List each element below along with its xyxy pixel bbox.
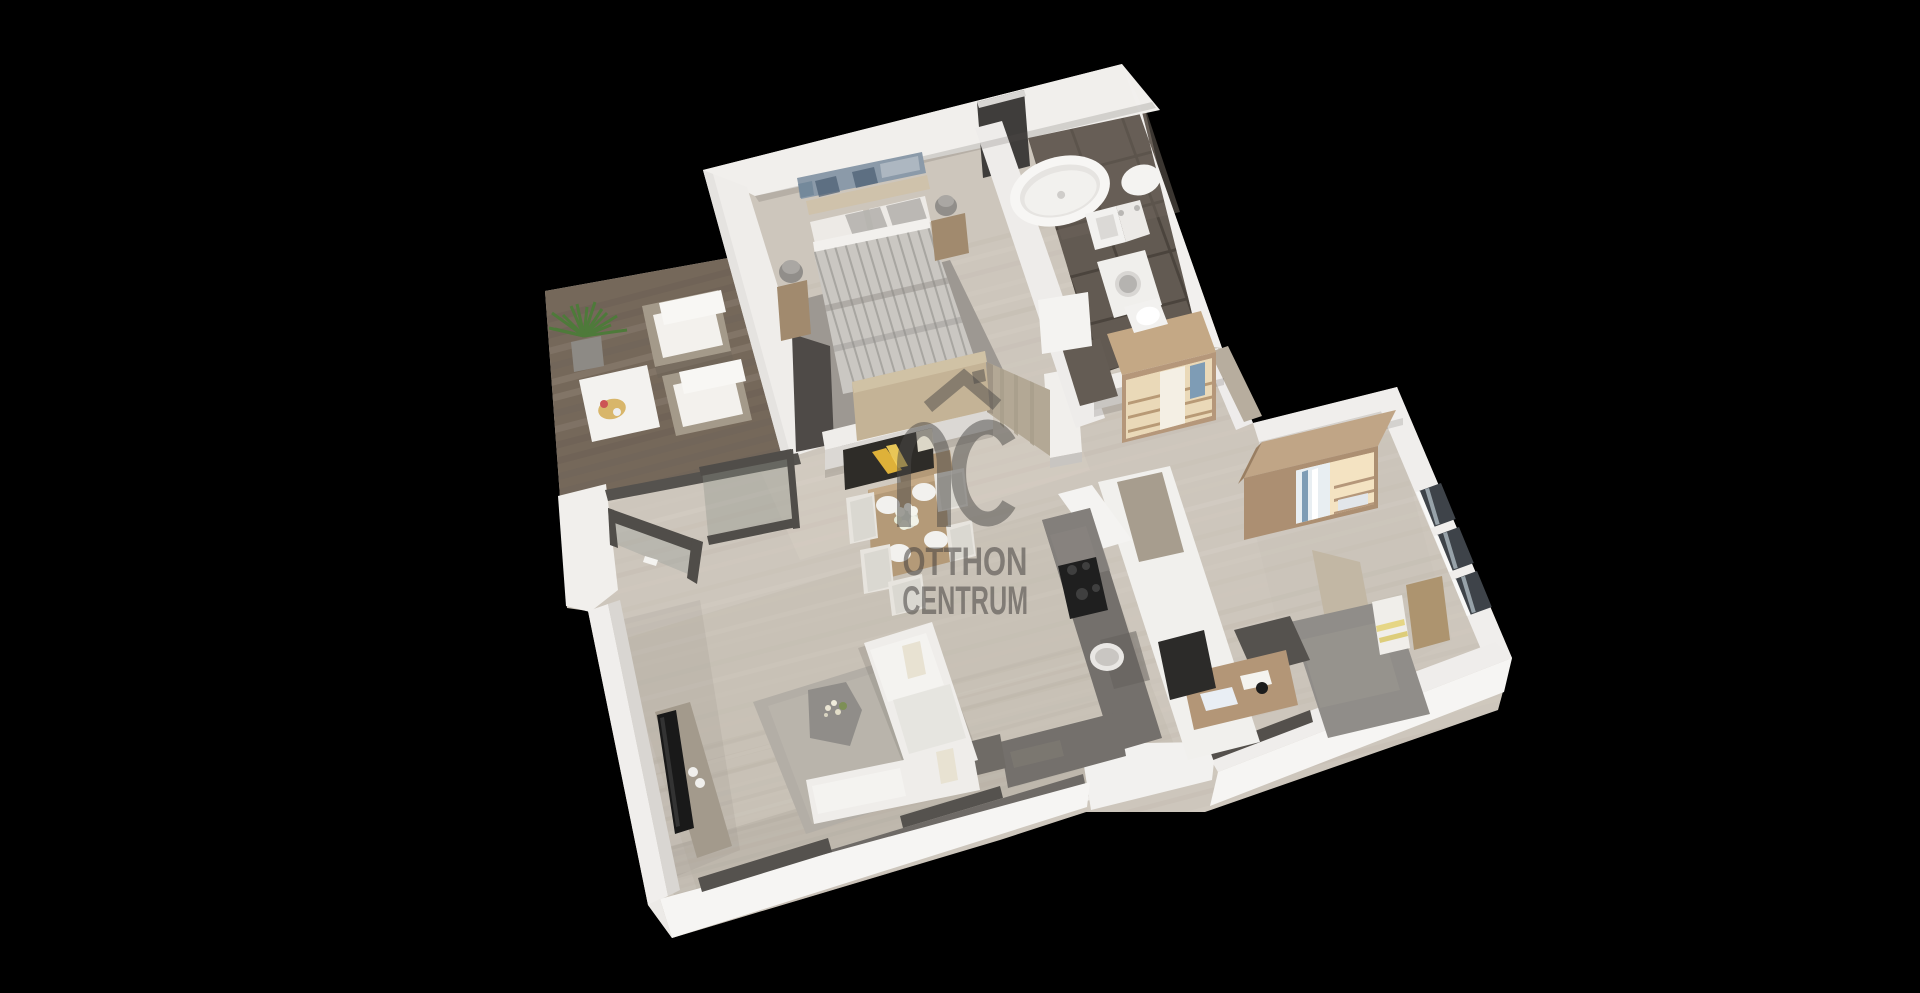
svg-text:OTTHON: OTTHON [902,540,1027,584]
svg-text:CENTRUM: CENTRUM [902,579,1028,623]
